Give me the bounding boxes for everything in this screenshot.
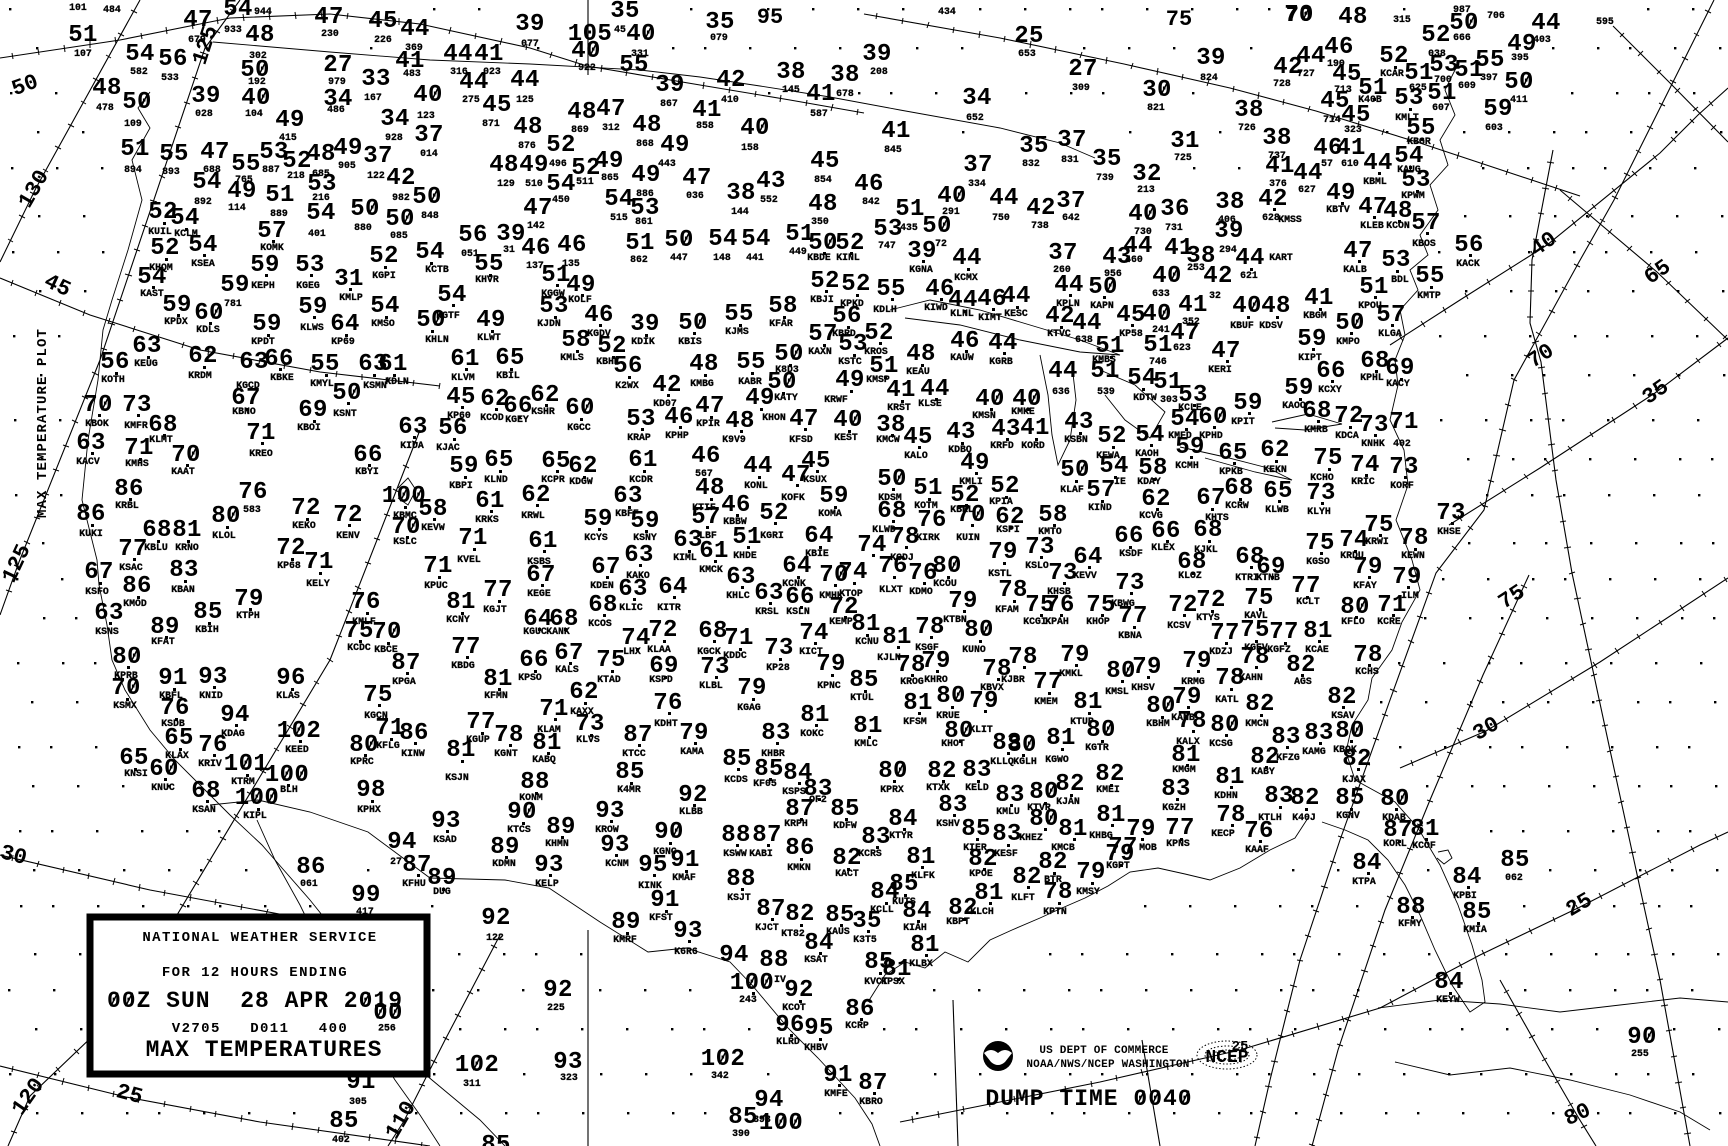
svg-text:44: 44 xyxy=(1235,245,1265,272)
svg-text:KPHP: KPHP xyxy=(665,430,689,441)
svg-text:56: 56 xyxy=(438,415,468,442)
svg-text:62: 62 xyxy=(1260,437,1290,464)
svg-text:KAMA: KAMA xyxy=(680,746,704,757)
svg-text:64: 64 xyxy=(330,311,360,338)
svg-text:KENV: KENV xyxy=(336,530,360,541)
svg-text:37: 37 xyxy=(1048,240,1078,267)
svg-text:305: 305 xyxy=(349,1096,367,1107)
svg-text:KDMN: KDMN xyxy=(492,858,516,869)
svg-text:38: 38 xyxy=(1234,97,1264,124)
svg-text:KBJI: KBJI xyxy=(810,294,834,305)
svg-text:41: 41 xyxy=(1020,415,1050,442)
svg-text:KAUW: KAUW xyxy=(950,352,974,363)
svg-text:KABI: KABI xyxy=(749,848,773,859)
svg-text:144: 144 xyxy=(731,206,749,217)
svg-text:KPAH: KPAH xyxy=(1045,616,1069,627)
svg-text:KSMN: KSMN xyxy=(363,380,387,391)
svg-text:39: 39 xyxy=(1214,218,1244,245)
svg-text:54: 54 xyxy=(741,226,771,253)
svg-text:824: 824 xyxy=(1200,72,1218,83)
svg-text:56: 56 xyxy=(100,349,130,376)
svg-text:98: 98 xyxy=(356,777,386,804)
svg-text:41: 41 xyxy=(886,377,916,404)
svg-text:85: 85 xyxy=(849,667,879,694)
svg-text:728: 728 xyxy=(1273,78,1291,89)
svg-text:KP68: KP68 xyxy=(277,560,301,571)
svg-text:46: 46 xyxy=(1324,34,1354,61)
svg-text:609: 609 xyxy=(1458,80,1476,91)
svg-text:27: 27 xyxy=(1068,56,1098,83)
svg-text:KSFO: KSFO xyxy=(85,586,109,597)
svg-text:69: 69 xyxy=(298,397,328,424)
svg-text:KEGE: KEGE xyxy=(527,588,551,599)
svg-text:KTLH: KTLH xyxy=(1258,812,1282,823)
svg-text:56: 56 xyxy=(458,222,488,249)
svg-text:KMYL: KMYL xyxy=(310,378,334,389)
svg-text:KDSV: KDSV xyxy=(1259,320,1283,331)
svg-text:KFAY: KFAY xyxy=(1353,580,1377,591)
svg-text:62: 62 xyxy=(188,343,218,370)
svg-text:KABR: KABR xyxy=(738,376,762,387)
svg-text:208: 208 xyxy=(870,66,888,77)
svg-text:KFAR: KFAR xyxy=(769,318,793,329)
svg-text:KOKC: KOKC xyxy=(800,728,824,739)
svg-text:51: 51 xyxy=(1143,332,1173,359)
svg-text:443: 443 xyxy=(658,158,676,169)
svg-text:KPKD: KPKD xyxy=(840,298,864,309)
svg-text:KFSM: KFSM xyxy=(903,716,927,727)
svg-text:71: 71 xyxy=(1389,409,1419,436)
svg-text:062: 062 xyxy=(1505,872,1523,883)
svg-text:KSAD: KSAD xyxy=(433,834,457,845)
svg-text:KRAP: KRAP xyxy=(627,432,651,443)
svg-text:KSGF: KSGF xyxy=(915,642,939,653)
svg-text:KAAF: KAAF xyxy=(1245,844,1269,855)
svg-text:53: 53 xyxy=(873,216,903,243)
svg-text:922: 922 xyxy=(578,62,596,73)
svg-text:334: 334 xyxy=(968,178,986,189)
svg-text:KTNB: KTNB xyxy=(1256,572,1280,583)
svg-text:85: 85 xyxy=(728,1104,758,1131)
svg-text:323: 323 xyxy=(560,1072,578,1083)
svg-text:KGEG: KGEG xyxy=(296,280,320,291)
svg-text:MOB: MOB xyxy=(1139,842,1157,853)
svg-text:55: 55 xyxy=(159,141,189,168)
svg-text:49: 49 xyxy=(476,307,506,334)
svg-text:323: 323 xyxy=(1344,124,1362,135)
svg-text:KSPD: KSPD xyxy=(649,674,673,685)
svg-text:78: 78 xyxy=(1399,525,1429,552)
svg-text:67: 67 xyxy=(84,559,114,586)
svg-text:450: 450 xyxy=(552,194,570,205)
svg-text:KBRO: KBRO xyxy=(859,1096,883,1107)
svg-text:369: 369 xyxy=(405,42,423,53)
svg-text:KBYI: KBYI xyxy=(355,466,379,477)
svg-text:44: 44 xyxy=(510,67,540,94)
svg-text:832: 832 xyxy=(1022,158,1040,169)
svg-text:49: 49 xyxy=(333,135,363,162)
svg-text:KMBG: KMBG xyxy=(690,378,714,389)
svg-text:KECP: KECP xyxy=(1211,828,1235,839)
svg-text:KHEZ: KHEZ xyxy=(1019,832,1043,843)
svg-text:44: 44 xyxy=(400,16,430,43)
svg-text:77: 77 xyxy=(1118,603,1148,630)
svg-text:KELY: KELY xyxy=(306,578,330,589)
svg-text:KFST: KFST xyxy=(649,912,673,923)
svg-text:63: 63 xyxy=(132,333,162,360)
svg-text:982: 982 xyxy=(392,192,410,203)
svg-text:894: 894 xyxy=(124,164,142,175)
svg-text:028: 028 xyxy=(195,108,213,119)
svg-text:731: 731 xyxy=(1165,222,1183,233)
svg-text:MAX TEMPERATURES: MAX TEMPERATURES xyxy=(146,1037,383,1063)
svg-text:KCTB: KCTB xyxy=(425,264,449,275)
svg-text:KINL: KINL xyxy=(836,252,860,263)
svg-text:KAMG: KAMG xyxy=(1302,746,1326,757)
svg-text:78: 78 xyxy=(1043,879,1073,906)
svg-text:KBIS: KBIS xyxy=(678,336,702,347)
svg-text:85: 85 xyxy=(193,599,223,626)
svg-text:39: 39 xyxy=(191,83,221,110)
svg-text:KRWL: KRWL xyxy=(521,510,545,521)
svg-text:109: 109 xyxy=(124,118,142,129)
svg-text:KCLT: KCLT xyxy=(1296,596,1320,607)
svg-text:KLBX: KLBX xyxy=(909,958,933,969)
svg-text:KHSV: KHSV xyxy=(1131,682,1155,693)
svg-text:KTPH: KTPH xyxy=(236,610,260,621)
svg-text:NCEP: NCEP xyxy=(1205,1048,1248,1068)
svg-text:KLEB: KLEB xyxy=(1360,220,1384,231)
svg-text:KPGA: KPGA xyxy=(392,676,416,687)
svg-text:39: 39 xyxy=(655,72,685,99)
svg-text:71: 71 xyxy=(304,549,334,576)
svg-text:KMSY: KMSY xyxy=(1076,886,1100,897)
svg-text:48: 48 xyxy=(513,114,543,141)
svg-text:KDMO: KDMO xyxy=(909,586,933,597)
svg-text:KERI: KERI xyxy=(1208,364,1232,375)
svg-text:603: 603 xyxy=(1485,122,1503,133)
svg-text:48: 48 xyxy=(808,191,838,218)
svg-text:72: 72 xyxy=(291,495,321,522)
svg-text:KGEY: KGEY xyxy=(505,414,529,425)
svg-text:KATY: KATY xyxy=(774,392,798,403)
svg-text:77: 77 xyxy=(483,577,513,604)
svg-text:83: 83 xyxy=(962,757,992,784)
svg-text:876: 876 xyxy=(518,140,536,151)
svg-text:61: 61 xyxy=(378,351,408,378)
svg-text:KPUC: KPUC xyxy=(424,580,448,591)
svg-text:59: 59 xyxy=(819,483,849,510)
svg-text:KALO: KALO xyxy=(904,450,928,461)
svg-text:KSAN: KSAN xyxy=(192,804,216,815)
svg-text:747: 747 xyxy=(878,240,896,251)
svg-text:582: 582 xyxy=(130,66,148,77)
svg-text:64: 64 xyxy=(782,553,812,580)
svg-text:KHLC: KHLC xyxy=(726,590,750,601)
svg-text:KHOT: KHOT xyxy=(941,738,965,749)
svg-text:85: 85 xyxy=(329,1108,359,1135)
svg-text:KBIH: KBIH xyxy=(195,624,219,635)
svg-text:862: 862 xyxy=(630,254,648,265)
svg-text:KEVW: KEVW xyxy=(421,522,445,533)
svg-text:KROG: KROG xyxy=(900,676,924,687)
svg-text:72: 72 xyxy=(648,617,678,644)
svg-text:125: 125 xyxy=(516,94,534,105)
svg-text:K40J: K40J xyxy=(1292,812,1316,823)
svg-text:595: 595 xyxy=(1596,16,1614,27)
svg-text:484: 484 xyxy=(103,4,121,15)
svg-text:714: 714 xyxy=(1323,114,1341,125)
svg-text:510: 510 xyxy=(525,178,543,189)
svg-text:54: 54 xyxy=(708,226,738,253)
svg-text:842: 842 xyxy=(862,196,880,207)
svg-text:48: 48 xyxy=(632,112,662,139)
svg-text:81: 81 xyxy=(446,589,476,616)
svg-text:KBGM: KBGM xyxy=(1303,310,1327,321)
svg-text:KGNA: KGNA xyxy=(909,264,933,275)
svg-text:KMSL: KMSL xyxy=(1105,686,1129,697)
svg-text:KELD: KELD xyxy=(965,782,989,793)
svg-text:45: 45 xyxy=(368,8,398,35)
svg-text:41: 41 xyxy=(806,81,836,108)
svg-text:KEPH: KEPH xyxy=(251,280,275,291)
svg-text:43: 43 xyxy=(946,419,976,446)
svg-text:IE: IE xyxy=(1114,476,1126,487)
svg-text:47: 47 xyxy=(596,96,626,123)
svg-text:KDLN: KDLN xyxy=(385,376,409,387)
svg-text:KRIC: KRIC xyxy=(1351,476,1375,487)
svg-text:129: 129 xyxy=(497,178,515,189)
svg-text:51: 51 xyxy=(120,136,150,163)
svg-text:KMEI: KMEI xyxy=(1096,784,1120,795)
svg-text:KMSO: KMSO xyxy=(371,318,395,329)
svg-text:82: 82 xyxy=(1055,771,1085,798)
svg-text:55: 55 xyxy=(736,349,766,376)
svg-text:79: 79 xyxy=(1076,859,1106,886)
svg-text:86: 86 xyxy=(785,835,815,862)
svg-text:39: 39 xyxy=(1196,45,1226,72)
svg-text:342: 342 xyxy=(711,1070,729,1081)
svg-text:82: 82 xyxy=(1245,691,1275,718)
svg-text:KFLO: KFLO xyxy=(1341,616,1365,627)
svg-text:511: 511 xyxy=(576,176,594,187)
svg-text:KLOZ: KLOZ xyxy=(1178,570,1202,581)
svg-text:636: 636 xyxy=(1052,386,1070,397)
svg-text:KCNY: KCNY xyxy=(446,614,470,625)
svg-text:KUIN: KUIN xyxy=(956,532,980,543)
svg-text:BLH: BLH xyxy=(280,784,298,795)
svg-text:47: 47 xyxy=(314,4,344,31)
svg-text:39: 39 xyxy=(630,311,660,338)
svg-text:402: 402 xyxy=(332,1134,350,1145)
svg-text:KSLC: KSLC xyxy=(393,536,417,547)
svg-text:44: 44 xyxy=(443,41,473,68)
svg-text:KABQ: KABQ xyxy=(532,754,556,765)
svg-text:81: 81 xyxy=(1046,725,1076,752)
svg-text:78: 78 xyxy=(998,577,1028,604)
svg-text:539: 539 xyxy=(1097,386,1115,397)
svg-text:48: 48 xyxy=(689,351,719,378)
svg-text:KGCC: KGCC xyxy=(567,422,591,433)
svg-text:KHLN: KHLN xyxy=(425,334,449,345)
svg-text:845: 845 xyxy=(884,144,902,155)
svg-text:47: 47 xyxy=(682,165,712,192)
svg-text:397: 397 xyxy=(1480,72,1498,83)
svg-text:077: 077 xyxy=(521,38,539,49)
svg-text:57: 57 xyxy=(808,321,838,348)
svg-text:38: 38 xyxy=(726,180,756,207)
svg-text:KFHU: KFHU xyxy=(402,878,426,889)
svg-text:44: 44 xyxy=(1001,283,1031,310)
svg-text:KESC: KESC xyxy=(1004,308,1028,319)
svg-text:48: 48 xyxy=(1261,293,1291,320)
svg-text:167: 167 xyxy=(364,92,382,103)
svg-text:KIPL: KIPL xyxy=(243,810,267,821)
svg-text:46: 46 xyxy=(521,235,551,262)
svg-text:MAX TEMPERATURE PLOT: MAX TEMPERATURE PLOT xyxy=(35,328,51,518)
svg-text:KFMY: KFMY xyxy=(1398,918,1422,929)
svg-text:KACT: KACT xyxy=(835,868,859,879)
svg-text:41: 41 xyxy=(881,118,911,145)
svg-text:KHON: KHON xyxy=(762,412,786,423)
svg-text:905: 905 xyxy=(338,160,356,171)
svg-text:31: 31 xyxy=(503,244,515,255)
svg-text:KCOS: KCOS xyxy=(588,618,612,629)
svg-text:871: 871 xyxy=(482,118,500,129)
svg-text:309: 309 xyxy=(1072,82,1090,93)
svg-text:KRPH: KRPH xyxy=(784,818,808,829)
svg-text:KLGA: KLGA xyxy=(1378,328,1402,339)
svg-text:76: 76 xyxy=(878,553,908,580)
svg-text:652: 652 xyxy=(966,112,984,123)
svg-text:KCOD: KCOD xyxy=(480,412,504,423)
svg-text:036: 036 xyxy=(686,190,704,201)
svg-text:496: 496 xyxy=(549,158,567,169)
svg-text:61: 61 xyxy=(628,447,658,474)
svg-text:KMCW: KMCW xyxy=(876,434,900,445)
svg-text:KJCT: KJCT xyxy=(755,922,779,933)
svg-text:KLWB: KLWB xyxy=(1265,504,1289,515)
svg-text:47: 47 xyxy=(523,195,553,222)
svg-text:583: 583 xyxy=(243,504,261,515)
svg-text:KITR: KITR xyxy=(657,602,681,613)
svg-text:KCLL: KCLL xyxy=(870,904,894,915)
svg-text:65: 65 xyxy=(164,725,194,752)
svg-text:KMTO: KMTO xyxy=(1038,526,1062,537)
svg-text:95: 95 xyxy=(804,1015,834,1042)
svg-text:142: 142 xyxy=(527,220,545,231)
svg-text:K4MR: K4MR xyxy=(617,784,641,795)
svg-text:848: 848 xyxy=(421,210,439,221)
svg-text:51: 51 xyxy=(1090,358,1120,385)
svg-text:54: 54 xyxy=(223,0,253,23)
svg-text:76: 76 xyxy=(238,479,268,506)
svg-text:55: 55 xyxy=(310,351,340,378)
svg-text:KACV: KACV xyxy=(76,456,100,467)
svg-text:85: 85 xyxy=(615,759,645,786)
svg-text:81: 81 xyxy=(446,737,476,764)
svg-text:37: 37 xyxy=(363,143,393,170)
svg-text:39: 39 xyxy=(515,11,545,38)
svg-text:55: 55 xyxy=(1475,47,1505,74)
svg-text:KGUC: KGUC xyxy=(523,626,547,637)
svg-text:86: 86 xyxy=(76,501,106,528)
svg-text:54: 54 xyxy=(125,41,155,68)
svg-text:K3T5: K3T5 xyxy=(853,934,877,945)
svg-text:KNSI: KNSI xyxy=(124,768,148,779)
svg-text:587: 587 xyxy=(810,108,828,119)
svg-text:KHBV: KHBV xyxy=(804,1042,828,1053)
svg-text:KMFR: KMFR xyxy=(124,420,148,431)
svg-text:68: 68 xyxy=(1224,475,1254,502)
svg-text:KSWW: KSWW xyxy=(723,848,747,859)
svg-text:65: 65 xyxy=(495,345,525,372)
svg-text:079: 079 xyxy=(710,32,728,43)
svg-text:NOAA/NWS/NCEP WASHINGTON: NOAA/NWS/NCEP WASHINGTON xyxy=(1026,1059,1189,1071)
svg-text:77: 77 xyxy=(466,709,496,736)
svg-text:49: 49 xyxy=(660,132,690,159)
svg-text:411: 411 xyxy=(1510,94,1528,105)
svg-text:KDLS: KDLS xyxy=(196,324,220,335)
svg-text:867: 867 xyxy=(660,98,678,109)
svg-text:KLRD: KLRD xyxy=(776,1036,800,1047)
svg-text:81: 81 xyxy=(853,713,883,740)
svg-text:51: 51 xyxy=(68,22,98,49)
svg-text:49: 49 xyxy=(835,367,865,394)
svg-text:KTYR: KTYR xyxy=(889,830,913,841)
svg-text:K8D3: K8D3 xyxy=(775,364,799,375)
svg-text:KRWF: KRWF xyxy=(824,394,848,405)
svg-text:KPIR: KPIR xyxy=(696,418,720,429)
svg-text:71: 71 xyxy=(458,525,488,552)
svg-text:47: 47 xyxy=(695,393,725,420)
svg-text:014: 014 xyxy=(420,148,438,159)
svg-text:36: 36 xyxy=(1160,196,1190,223)
svg-text:43: 43 xyxy=(756,168,786,195)
svg-text:92: 92 xyxy=(543,977,573,1004)
svg-text:706: 706 xyxy=(1487,10,1505,21)
svg-text:KCOF: KCOF xyxy=(1412,840,1436,851)
svg-text:KRDM: KRDM xyxy=(188,370,212,381)
svg-text:72: 72 xyxy=(1196,587,1226,614)
svg-text:KSNT: KSNT xyxy=(333,408,357,419)
svg-text:533: 533 xyxy=(161,72,179,83)
svg-text:KSNS: KSNS xyxy=(95,626,119,637)
svg-text:KIRK: KIRK xyxy=(916,532,940,543)
svg-text:92: 92 xyxy=(784,977,814,1004)
svg-text:46: 46 xyxy=(557,232,587,259)
svg-text:KPOE: KPOE xyxy=(969,868,993,879)
svg-text:44: 44 xyxy=(1048,358,1078,385)
svg-text:627: 627 xyxy=(1298,184,1316,195)
svg-text:KGNV: KGNV xyxy=(1336,810,1360,821)
svg-text:KFLG: KFLG xyxy=(376,740,400,751)
svg-text:KGPT: KGPT xyxy=(1106,860,1130,871)
svg-text:KCHS: KCHS xyxy=(1355,666,1379,677)
svg-text:KORF: KORF xyxy=(1390,480,1414,491)
svg-text:76: 76 xyxy=(351,589,381,616)
svg-text:KPIT: KPIT xyxy=(1231,416,1255,427)
svg-text:987: 987 xyxy=(1453,4,1471,15)
svg-text:KUNO: KUNO xyxy=(962,644,986,655)
svg-text:85: 85 xyxy=(1500,847,1530,874)
svg-text:KLVM: KLVM xyxy=(451,372,475,383)
svg-text:44: 44 xyxy=(989,185,1019,212)
svg-text:107: 107 xyxy=(74,48,92,59)
svg-text:KPTN: KPTN xyxy=(1043,906,1067,917)
svg-text:KCRE: KCRE xyxy=(1377,616,1401,627)
svg-text:KBDG: KBDG xyxy=(451,660,475,671)
